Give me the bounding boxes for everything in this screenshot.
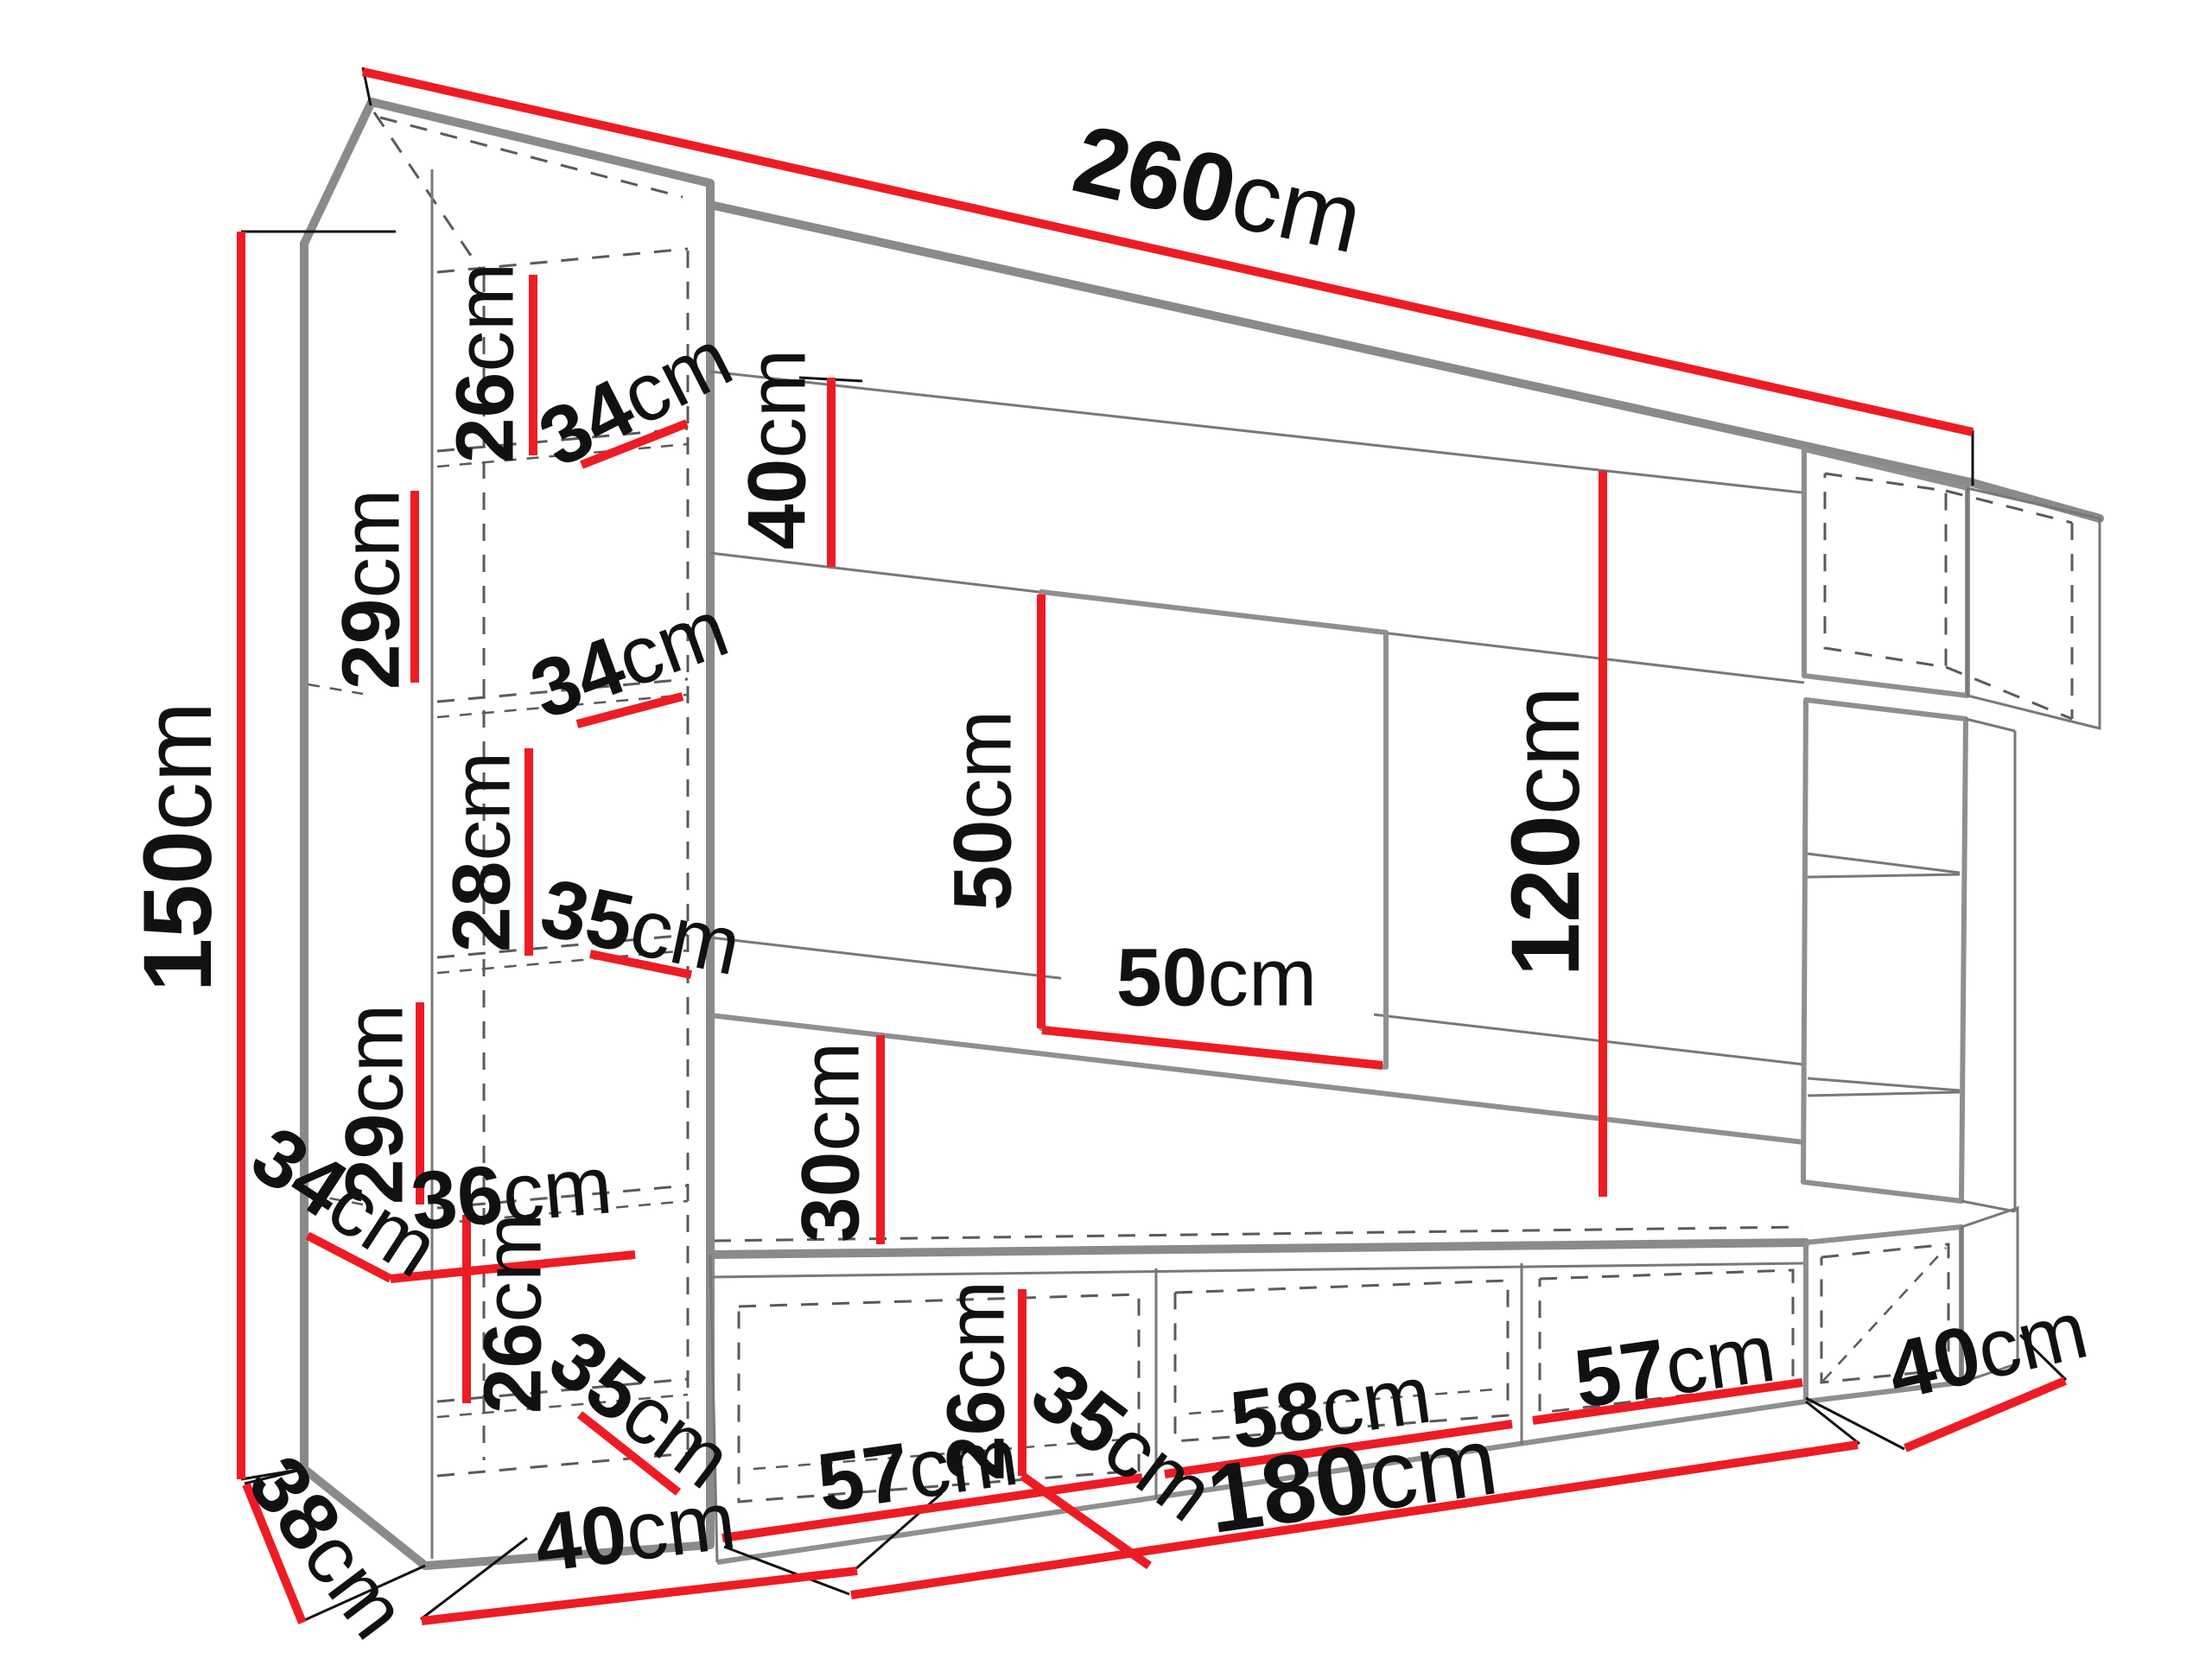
right-top-cabinet-side — [1967, 488, 2100, 728]
tv-width-label: 50cm — [1116, 931, 1317, 1023]
right-column-height-label: 120cm — [1491, 686, 1599, 976]
top-panel-height-label: 40cm — [731, 349, 823, 550]
wall-gap-height-label: 30cm — [785, 1042, 876, 1243]
stand-comp1-width-label: 57cm — [812, 1411, 1024, 1529]
overall-width-label: 260cm — [1065, 105, 1371, 274]
tv-height-label: 50cm — [937, 710, 1028, 911]
dim-line-base-width-left — [422, 1571, 857, 1621]
left-shelf3-depth-label: 35cm — [533, 861, 748, 993]
left-shelf2-height-label: 29cm — [325, 489, 416, 690]
diagram-stage: 260cm 150cm 26cm 34cm 29cm 34cm 28cm 35c… — [0, 0, 2212, 1659]
stand-top-edge — [710, 1243, 1806, 1255]
left-shelf1-height-label: 26cm — [439, 263, 531, 463]
top-panel-bottom-edge — [710, 372, 1802, 493]
right-column — [1803, 700, 1966, 1201]
base-width-left-label: 40cm — [530, 1474, 740, 1590]
right-column-shelf — [1808, 854, 1960, 873]
dimension-labels: 260cm 150cm 26cm 34cm 29cm 34cm 28cm 35c… — [124, 105, 2095, 1656]
left-shelf3-height-label: 28cm — [435, 752, 527, 952]
stand-inner-depth-label: 35cm — [1015, 1345, 1230, 1539]
furniture-dimension-diagram: 260cm 150cm 26cm 34cm 29cm 34cm 28cm 35c… — [0, 0, 2212, 1659]
base-depth-right-label: 40cm — [1879, 1283, 2095, 1418]
right-column-shelf — [1808, 1078, 1960, 1090]
overall-height-label: 150cm — [124, 702, 232, 992]
